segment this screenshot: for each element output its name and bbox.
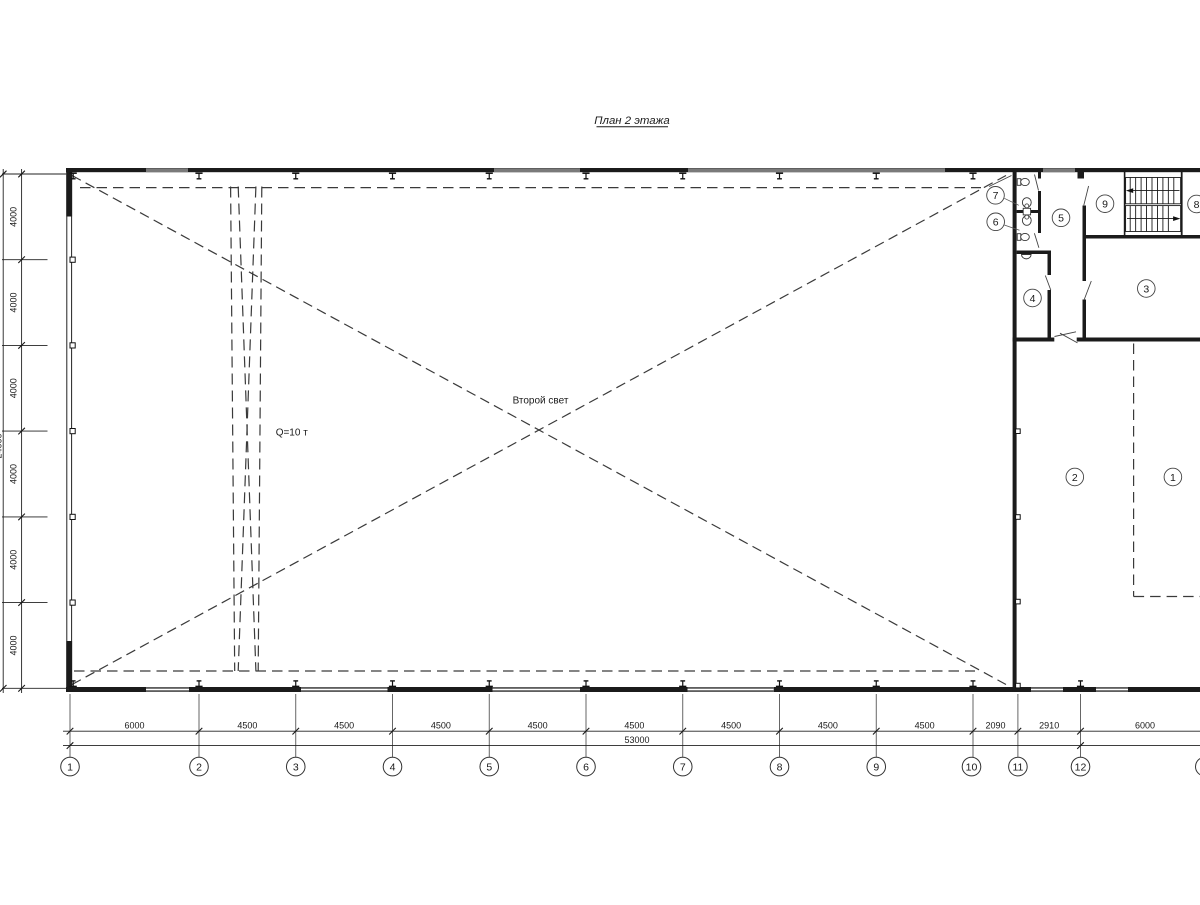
svg-text:3: 3: [1143, 283, 1149, 295]
svg-text:2090: 2090: [985, 721, 1005, 731]
svg-text:4500: 4500: [334, 721, 354, 731]
svg-text:5: 5: [1058, 213, 1064, 225]
svg-text:4: 4: [1030, 293, 1036, 305]
svg-text:6000: 6000: [1135, 721, 1155, 731]
svg-text:4500: 4500: [431, 721, 451, 731]
svg-text:8: 8: [777, 761, 783, 773]
svg-text:4500: 4500: [721, 721, 741, 731]
svg-text:Q=10 т: Q=10 т: [276, 428, 309, 439]
svg-text:2: 2: [196, 761, 202, 773]
svg-text:4000: 4000: [9, 293, 19, 313]
svg-text:9: 9: [873, 761, 879, 773]
svg-text:4500: 4500: [528, 721, 548, 731]
svg-text:24000: 24000: [0, 433, 4, 458]
svg-text:9: 9: [1102, 199, 1108, 211]
svg-text:4000: 4000: [9, 550, 19, 570]
svg-text:4500: 4500: [915, 721, 935, 731]
svg-text:3: 3: [293, 761, 299, 773]
svg-text:4500: 4500: [237, 721, 257, 731]
svg-text:5: 5: [486, 761, 492, 773]
svg-text:2: 2: [1072, 472, 1078, 484]
svg-text:11: 11: [1012, 761, 1023, 773]
svg-text:53000: 53000: [624, 735, 649, 745]
svg-text:12: 12: [1075, 761, 1087, 773]
svg-text:6: 6: [993, 217, 999, 229]
svg-text:7: 7: [993, 190, 999, 202]
svg-text:1: 1: [1170, 472, 1176, 484]
svg-text:Второй свет: Второй свет: [513, 396, 569, 407]
svg-text:4000: 4000: [9, 464, 19, 484]
svg-text:4000: 4000: [9, 378, 19, 398]
svg-text:4500: 4500: [624, 721, 644, 731]
svg-text:1: 1: [67, 761, 73, 773]
svg-text:6: 6: [583, 761, 589, 773]
svg-text:7: 7: [680, 761, 686, 773]
svg-text:10: 10: [966, 761, 978, 773]
svg-text:2910: 2910: [1039, 721, 1059, 731]
svg-text:4500: 4500: [818, 721, 838, 731]
svg-text:6000: 6000: [124, 721, 144, 731]
svg-text:План 2 этажа: План 2 этажа: [594, 115, 669, 127]
svg-text:4000: 4000: [9, 635, 19, 655]
svg-text:4000: 4000: [9, 207, 19, 227]
svg-text:4: 4: [390, 761, 396, 773]
svg-text:8: 8: [1194, 199, 1200, 211]
